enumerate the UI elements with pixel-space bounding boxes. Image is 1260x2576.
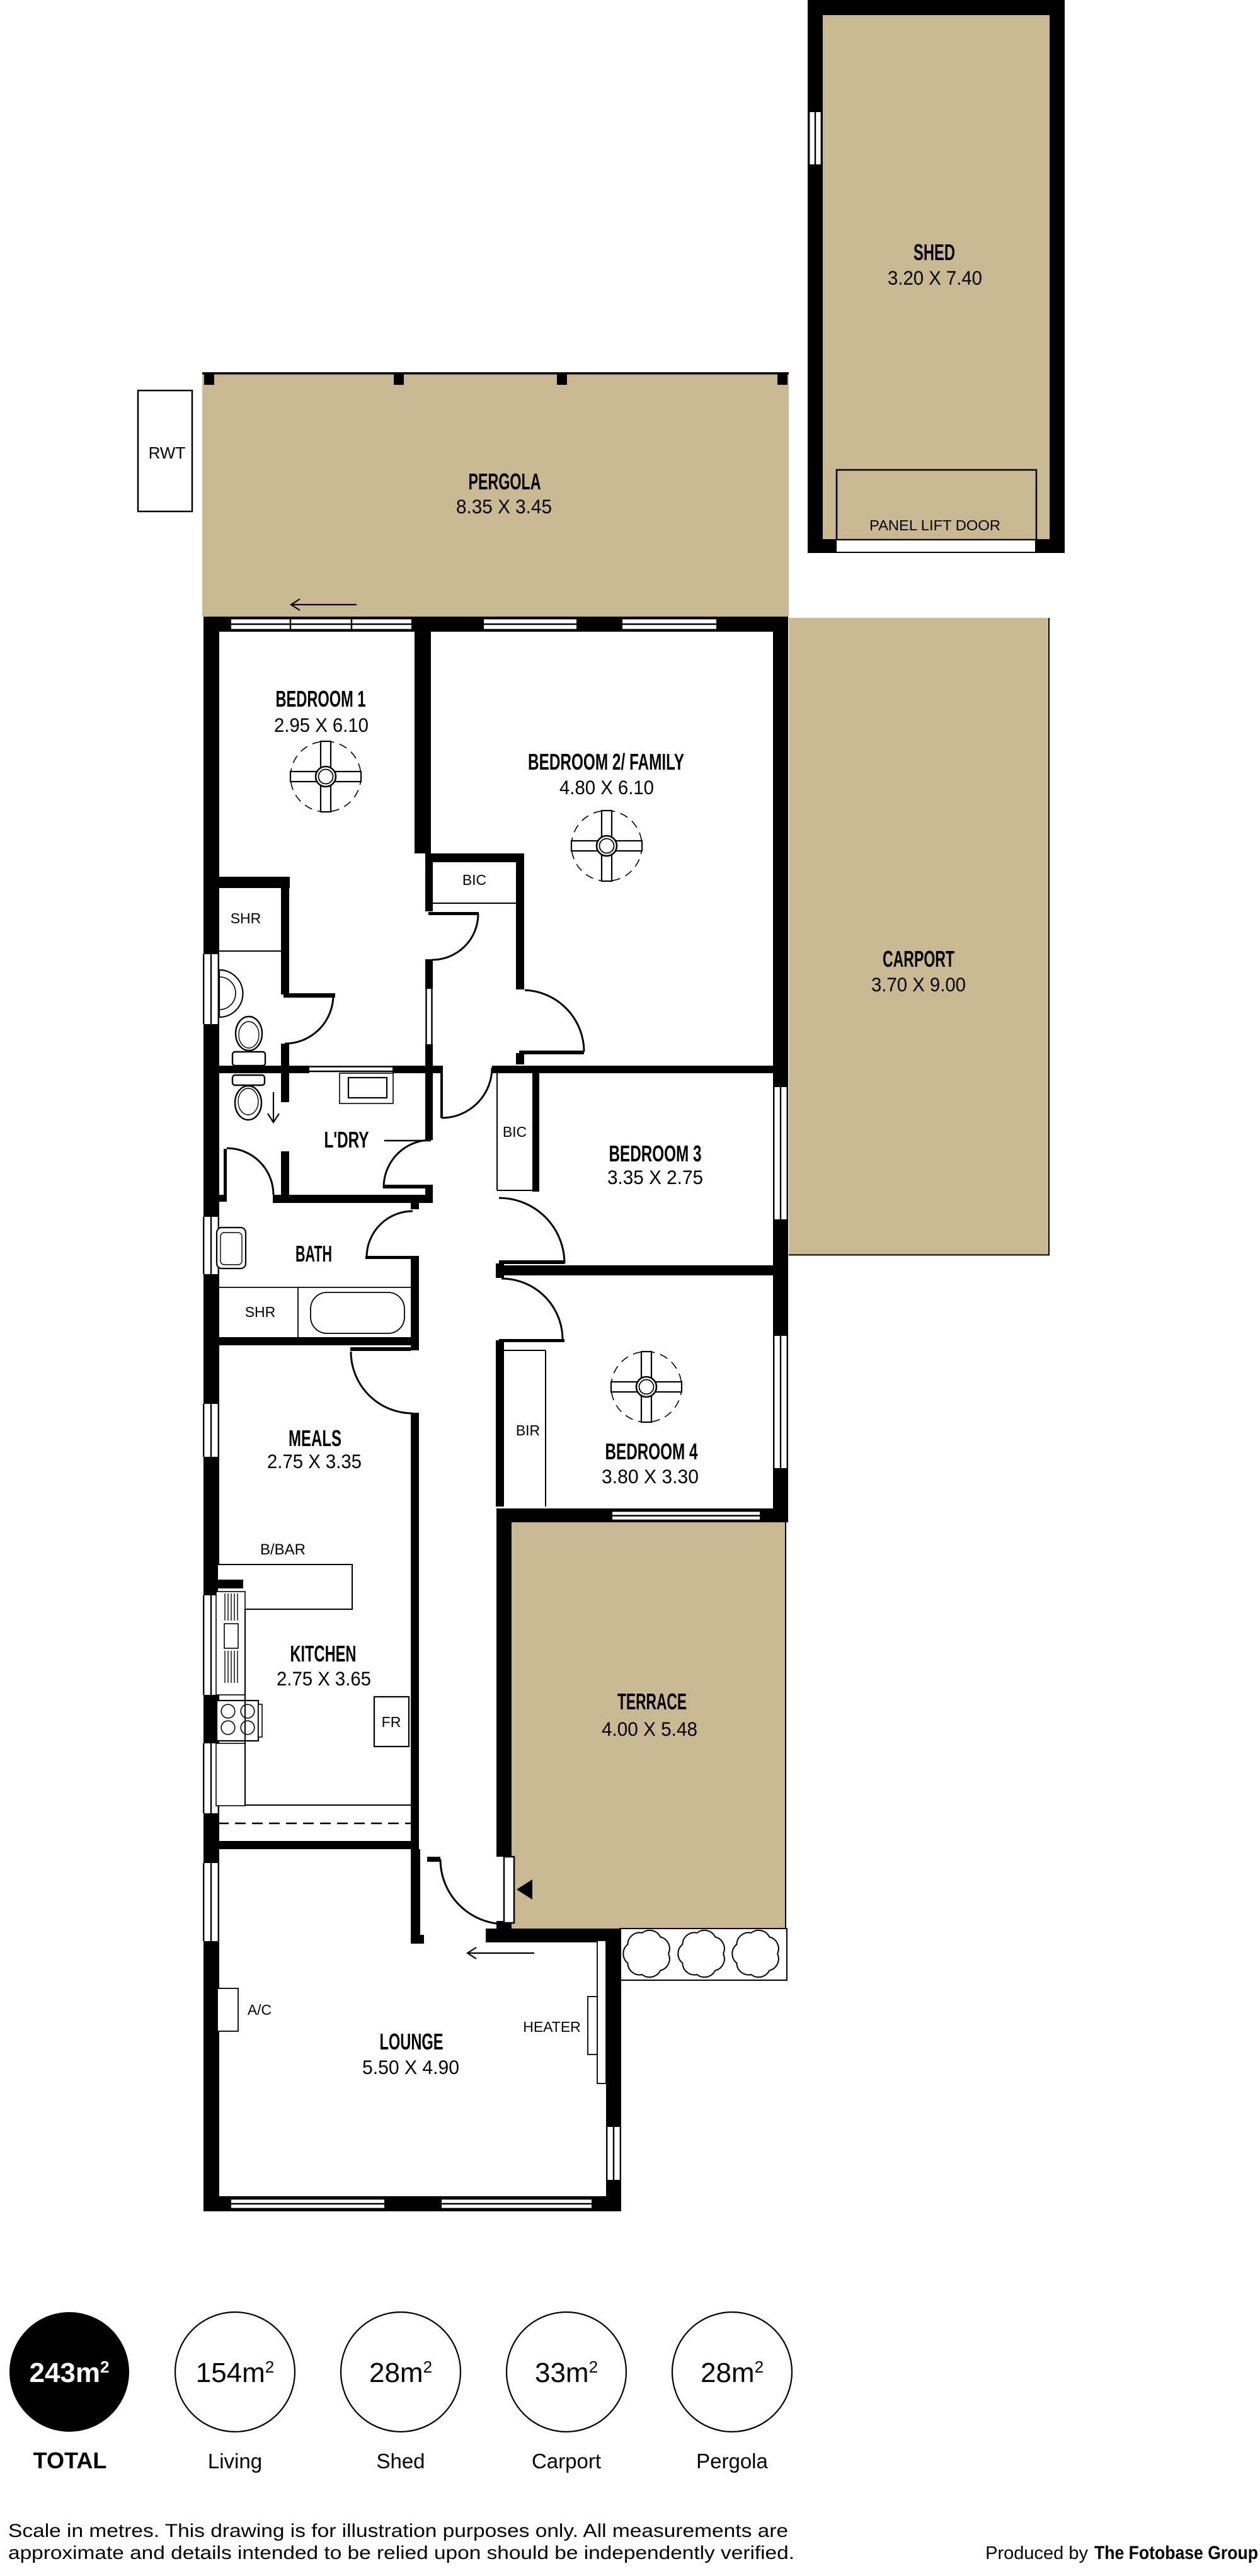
svg-text:LOUNGE: LOUNGE <box>380 2029 444 2055</box>
svg-text:2.75 X 3.35: 2.75 X 3.35 <box>267 1450 362 1473</box>
svg-text:SHR: SHR <box>245 1304 276 1320</box>
svg-text:CARPORT: CARPORT <box>883 946 954 972</box>
svg-text:PANEL LIFT DOOR: PANEL LIFT DOOR <box>869 517 1000 533</box>
svg-text:3.70 X 9.00: 3.70 X 9.00 <box>871 973 966 996</box>
svg-text:Shed: Shed <box>376 2449 425 2473</box>
svg-text:3.35 X 2.75: 3.35 X 2.75 <box>607 1166 703 1188</box>
svg-text:RWT: RWT <box>149 443 186 462</box>
svg-text:Carport: Carport <box>532 2449 601 2473</box>
svg-text:Produced by: Produced by <box>985 2543 1088 2563</box>
svg-text:MEALS: MEALS <box>289 1425 341 1451</box>
svg-text:Scale in metres. This drawing: Scale in metres. This drawing is for ill… <box>8 2521 788 2541</box>
svg-text:TOTAL: TOTAL <box>33 2448 107 2473</box>
svg-text:5.50 X 4.90: 5.50 X 4.90 <box>362 2056 459 2078</box>
svg-text:28m2: 28m2 <box>701 2357 764 2388</box>
svg-text:BEDROOM 3: BEDROOM 3 <box>609 1141 702 1166</box>
svg-text:KITCHEN: KITCHEN <box>290 1641 357 1667</box>
svg-text:A/C: A/C <box>248 2002 272 2018</box>
svg-text:2.75 X 3.65: 2.75 X 3.65 <box>277 1667 371 1690</box>
svg-text:FR: FR <box>382 1714 401 1730</box>
svg-text:The Fotobase Group: The Fotobase Group <box>1094 2543 1258 2563</box>
svg-text:PERGOLA: PERGOLA <box>469 469 541 494</box>
svg-text:B/BAR: B/BAR <box>260 1541 306 1558</box>
svg-text:BIC: BIC <box>462 872 486 888</box>
svg-text:BIR: BIR <box>516 1422 540 1439</box>
svg-text:HEATER: HEATER <box>523 2019 581 2035</box>
svg-text:28m2: 28m2 <box>369 2357 432 2388</box>
svg-text:BEDROOM 1: BEDROOM 1 <box>276 686 366 712</box>
svg-text:L'DRY: L'DRY <box>324 1127 369 1153</box>
svg-text:33m2: 33m2 <box>535 2357 598 2388</box>
svg-text:2.95 X 6.10: 2.95 X 6.10 <box>274 714 369 736</box>
svg-text:SHED: SHED <box>913 239 955 265</box>
svg-text:TERRACE: TERRACE <box>617 1689 687 1714</box>
svg-text:4.80 X 6.10: 4.80 X 6.10 <box>559 776 654 799</box>
svg-text:243m2: 243m2 <box>29 2357 109 2388</box>
svg-text:BEDROOM 2/ FAMILY: BEDROOM 2/ FAMILY <box>528 749 684 775</box>
svg-text:SHR: SHR <box>231 910 261 926</box>
svg-text:3.80 X 3.30: 3.80 X 3.30 <box>602 1465 699 1488</box>
svg-text:BIC: BIC <box>503 1124 527 1140</box>
svg-text:154m2: 154m2 <box>196 2357 275 2388</box>
svg-text:Pergola: Pergola <box>696 2449 768 2473</box>
svg-text:Living: Living <box>208 2449 262 2473</box>
svg-text:approximate and details intend: approximate and details intended to be r… <box>8 2543 794 2563</box>
svg-text:BEDROOM 4: BEDROOM 4 <box>605 1439 698 1464</box>
svg-text:8.35 X 3.45: 8.35 X 3.45 <box>456 495 552 518</box>
svg-text:4.00 X 5.48: 4.00 X 5.48 <box>602 1718 697 1740</box>
svg-text:3.20 X 7.40: 3.20 X 7.40 <box>888 266 982 289</box>
svg-text:BATH: BATH <box>295 1241 332 1267</box>
